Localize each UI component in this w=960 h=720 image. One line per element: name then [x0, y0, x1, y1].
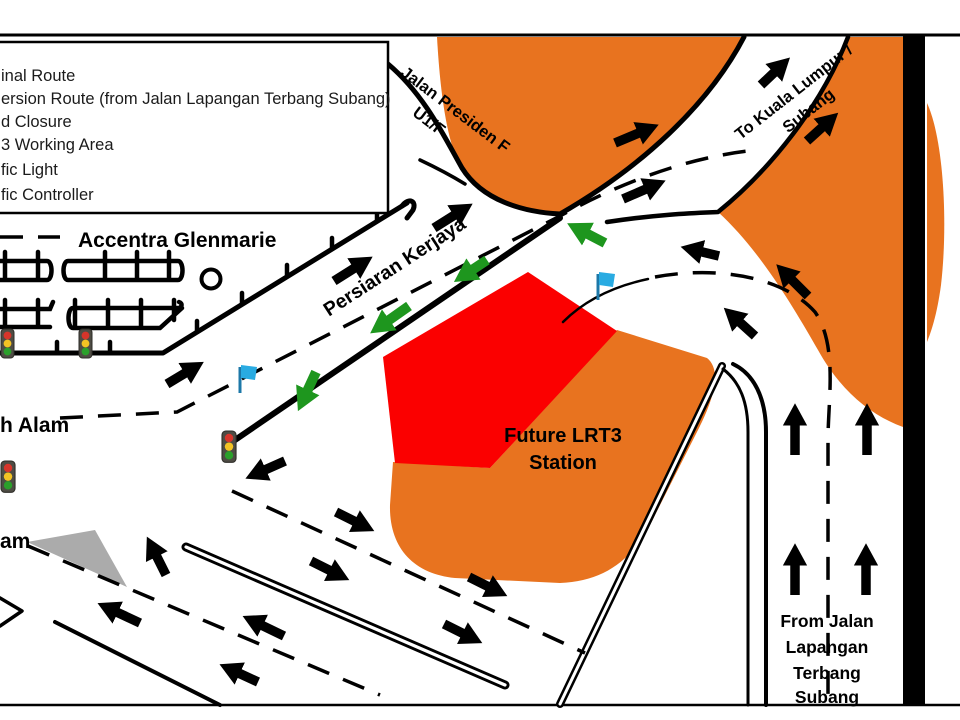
route-arrow — [444, 624, 470, 637]
lot-row1-b — [64, 252, 183, 280]
road-edge-se-southwest — [55, 622, 220, 705]
traffic-light-icon — [1, 461, 15, 492]
route-arrow — [694, 250, 719, 256]
lot-row2-a — [0, 300, 53, 327]
diversion-map: Jalan Presiden F U1/F To Kuala Lumpur / … — [0, 0, 960, 720]
legend-item: 3 Working Area — [1, 136, 114, 154]
traffic-light-icon — [79, 329, 92, 358]
traffic-light-icon — [222, 431, 236, 462]
route-arrow — [110, 609, 140, 623]
accentra-fence-hook — [402, 201, 414, 218]
label-from-jalan: Terbang — [793, 663, 861, 683]
lot-row2-b — [69, 300, 183, 328]
roundabout-circle — [202, 270, 221, 289]
highway-barrier-bar — [903, 36, 925, 705]
legend-item: d Closure — [1, 113, 72, 131]
label-from-jalan: Subang — [795, 687, 859, 707]
label-station: Station — [529, 452, 597, 474]
map-canvas: Jalan Presiden F U1/F To Kuala Lumpur / … — [0, 0, 960, 720]
diversion-route-arrow — [580, 230, 605, 243]
legend-item: ersion Route (from Jalan Lapangan Terban… — [1, 90, 391, 108]
legend-item: inal Route — [1, 67, 75, 85]
route-arrow — [167, 369, 192, 384]
label-accentra-glenmarie: Accentra Glenmarie — [78, 229, 276, 252]
diversion-route-arrow — [304, 372, 316, 398]
label-shah-alam-lower: am — [0, 530, 30, 553]
road-corner-bottom-left — [0, 598, 22, 626]
route-arrow — [734, 317, 755, 336]
road-edge-vertical-left1 — [723, 369, 748, 705]
label-from-jalan: From Jalan — [780, 611, 873, 631]
route-arrow — [255, 622, 284, 636]
traffic-light-icon — [1, 329, 14, 358]
lrt3-working-area-sliver — [927, 103, 944, 342]
lot-row1-a — [0, 252, 52, 280]
route-arrow — [623, 186, 653, 199]
route-arrow — [232, 670, 258, 682]
traffic-island-gray — [27, 530, 127, 587]
label-station: Future LRT3 — [504, 425, 622, 447]
label-from-jalan: Lapangan — [786, 637, 869, 657]
label-shah-alam-upper: h Alam — [0, 414, 69, 437]
legend-item: fic Controller — [1, 186, 94, 204]
label-persiaran-kerjaya: Persiaran Kerjaya — [320, 213, 470, 321]
route-arrow — [311, 561, 337, 574]
road-label: Persiaran Kerjaya — [320, 213, 470, 321]
route-arrow — [336, 512, 362, 525]
route-arrow — [761, 67, 780, 85]
lrt3-working-area-right — [718, 37, 903, 427]
accentra-lots — [0, 252, 221, 328]
legend: inal Route ersion Route (from Jalan Lapa… — [0, 42, 391, 213]
route-arrow — [153, 549, 166, 575]
route-arrow — [258, 461, 285, 473]
legend-item: fic Light — [1, 161, 58, 179]
